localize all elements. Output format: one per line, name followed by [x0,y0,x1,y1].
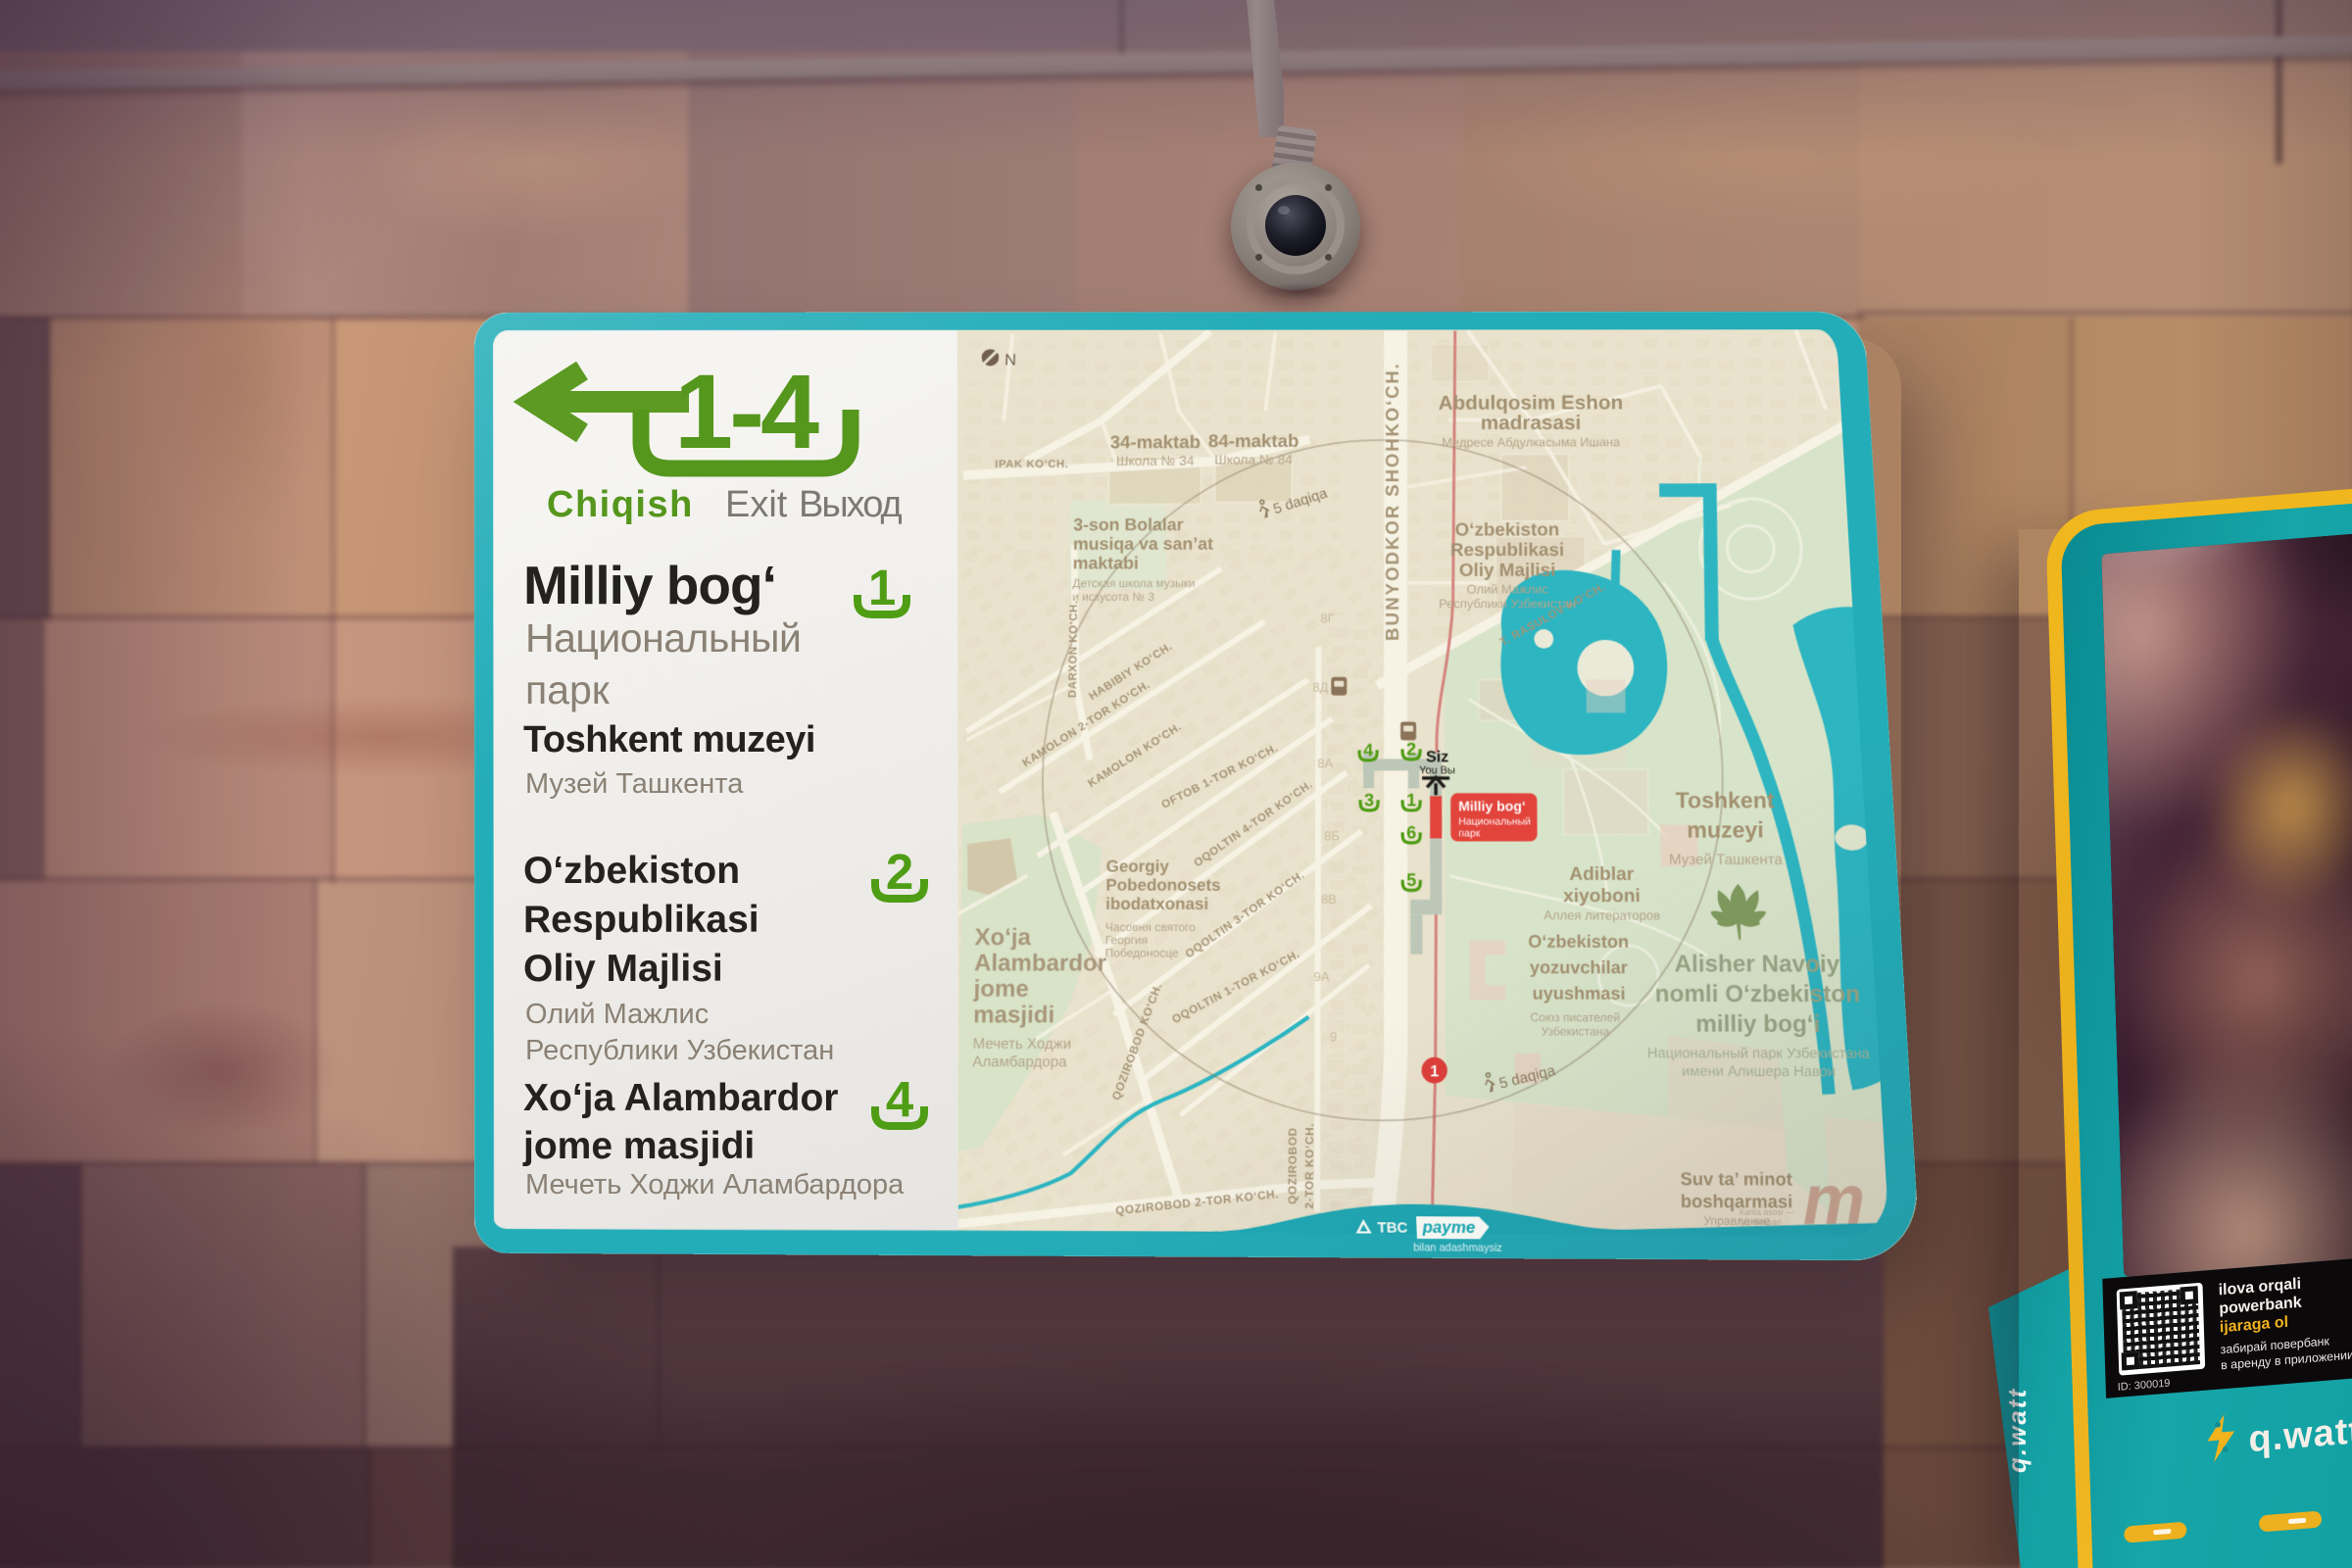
svg-text:парк: парк [525,667,611,712]
svg-text:O‘zbekiston: O‘zbekiston [523,850,740,892]
svg-text:Oliy Majlisi: Oliy Majlisi [523,948,723,990]
svg-text:Выход: Выход [799,484,903,525]
svg-text:2: 2 [886,844,913,900]
svg-text:Xo‘ja Alambardor: Xo‘ja Alambardor [523,1077,838,1119]
svg-text:Exit: Exit [725,484,788,525]
svg-text:Milliy bog‘: Milliy bog‘ [523,555,776,615]
svg-text:Национальный: Национальный [525,615,801,661]
svg-text:1: 1 [868,560,896,615]
svg-text:1-4: 1-4 [674,352,819,470]
svg-text:Chiqish: Chiqish [547,484,694,525]
svg-text:Олий Мажлис: Олий Мажлис [525,999,709,1030]
svg-text:Toshkent muzeyi: Toshkent muzeyi [523,719,815,760]
svg-text:Республики Узбекистан: Республики Узбекистан [525,1035,834,1066]
svg-text:Музей Ташкента: Музей Ташкента [525,768,744,800]
svg-text:Respublikasi: Respublikasi [523,899,759,941]
svg-text:q.watt: q.watt [2248,1410,2352,1460]
svg-text:jome masjidi: jome masjidi [522,1125,755,1167]
svg-text:4: 4 [886,1071,914,1127]
svg-text:Мечеть Ходжи Аламбардора: Мечеть Ходжи Аламбардора [525,1169,905,1200]
